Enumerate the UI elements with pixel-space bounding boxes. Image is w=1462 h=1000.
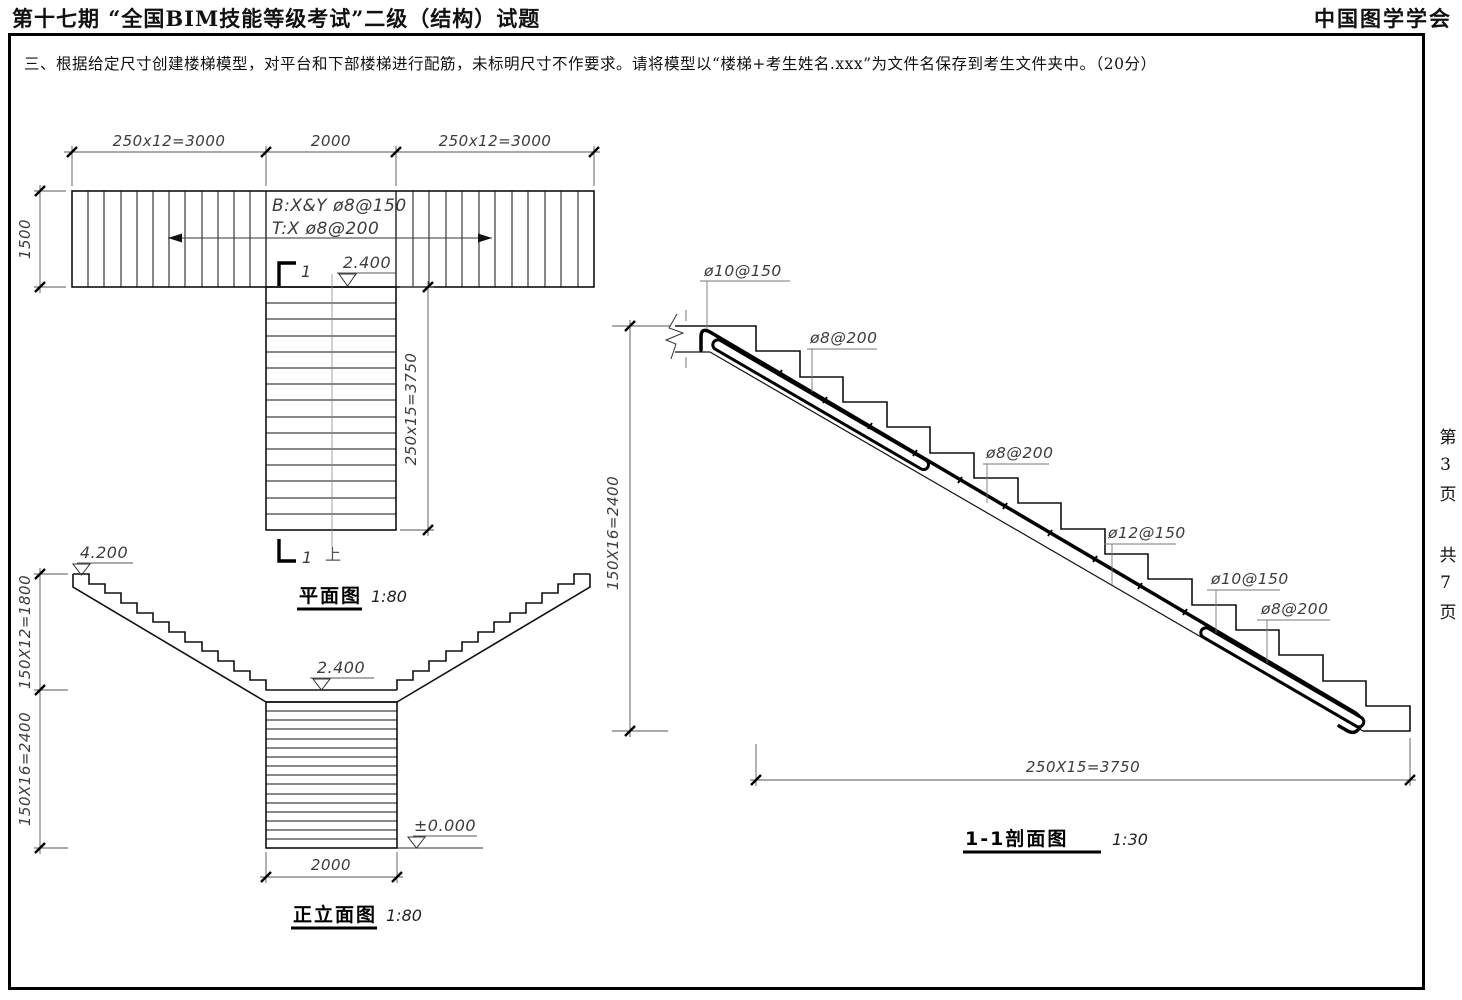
plan-level-triangle-icon xyxy=(339,274,356,286)
elevation-right-flight-steps xyxy=(397,574,590,690)
rebar-label-low-main: ø10@150 xyxy=(1210,570,1289,588)
section-cut-number-bottom: 1 xyxy=(302,548,313,567)
plan-view-scale: 1:80 xyxy=(371,587,407,606)
plan-right-flight-treads xyxy=(413,191,578,287)
plan-top-dimension-lines xyxy=(64,146,600,186)
section-soffit-line xyxy=(675,352,1363,731)
plan-up-label: 上 xyxy=(325,545,341,564)
plan-dim-left: 1500 xyxy=(16,219,34,259)
elevation-dim-upper-flight: 150X12=1800 xyxy=(16,575,34,689)
elevation-level-ground: ±0.000 xyxy=(414,816,476,835)
plan-view: 250x12=3000 2000 250x12=3000 1500 250x15… xyxy=(16,132,600,609)
section-dim-run: 250X15=3750 xyxy=(1026,758,1140,776)
plan-dim-top-middle: 2000 xyxy=(311,132,351,150)
elevation-level-ground-triangle-icon xyxy=(408,837,425,848)
rebar-label-top-main: ø10@150 xyxy=(703,262,782,280)
plan-dim-top-left: 250x12=3000 xyxy=(113,132,226,150)
section-cut-number-top: 1 xyxy=(301,262,312,281)
plan-left-dimension-lines xyxy=(34,185,66,293)
plan-dim-flight: 250x15=3750 xyxy=(402,353,420,466)
elevation-left-dimension-lines xyxy=(34,568,68,854)
section-cut-mark-bottom xyxy=(279,539,296,561)
rebar-leader-lines xyxy=(707,281,1267,663)
elevation-lower-flight-treads xyxy=(266,711,397,839)
elevation-view-title: 正立面图 xyxy=(293,903,377,926)
elevation-dim-lower-flight: 150X16=2400 xyxy=(16,712,34,826)
plan-left-flight-treads xyxy=(88,191,250,287)
plan-dim-top-right: 250x12=3000 xyxy=(439,132,552,150)
plan-note-top-rebar: T:X ø8@200 xyxy=(272,219,379,239)
section-view: ø10@150 ø8@200 ø8@200 ø12@150 ø10@150 ø8… xyxy=(604,262,1416,852)
elevation-level-landing: 2.400 xyxy=(317,658,365,677)
plan-level-label: 2.400 xyxy=(343,253,391,272)
elevation-dim-width: 2000 xyxy=(311,856,351,874)
rebar-label-top-dist: ø8@200 xyxy=(809,329,877,347)
left-arrowhead-icon xyxy=(168,234,182,243)
section-view-title: 1-1剖面图 xyxy=(965,827,1068,850)
right-arrowhead-icon xyxy=(478,234,492,243)
section-view-scale: 1:30 xyxy=(1112,830,1148,849)
plan-lower-flight-outline xyxy=(266,287,396,530)
rebar-label-mid-dist: ø8@200 xyxy=(985,444,1053,462)
elevation-view-scale: 1:80 xyxy=(386,906,422,925)
elevation-level-landing-triangle-icon xyxy=(313,679,330,690)
plan-lower-flight-treads xyxy=(266,303,396,514)
rebar-label-mid-main: ø12@150 xyxy=(1107,524,1186,542)
section-upper-rebar-loop xyxy=(711,338,930,471)
section-dim-height: 150X16=2400 xyxy=(604,476,622,590)
stair-drawing-canvas: 250x12=3000 2000 250x12=3000 1500 250x15… xyxy=(0,0,1462,1000)
rebar-label-low-dist: ø8@200 xyxy=(1260,600,1328,618)
section-cut-mark-top xyxy=(279,263,296,286)
section-lower-rebar-loop xyxy=(1199,626,1366,729)
plan-view-title: 平面图 xyxy=(299,585,362,607)
elevation-level-top: 4.200 xyxy=(80,543,128,562)
plan-note-bottom-rebar: B:X&Y ø8@150 xyxy=(272,196,407,216)
